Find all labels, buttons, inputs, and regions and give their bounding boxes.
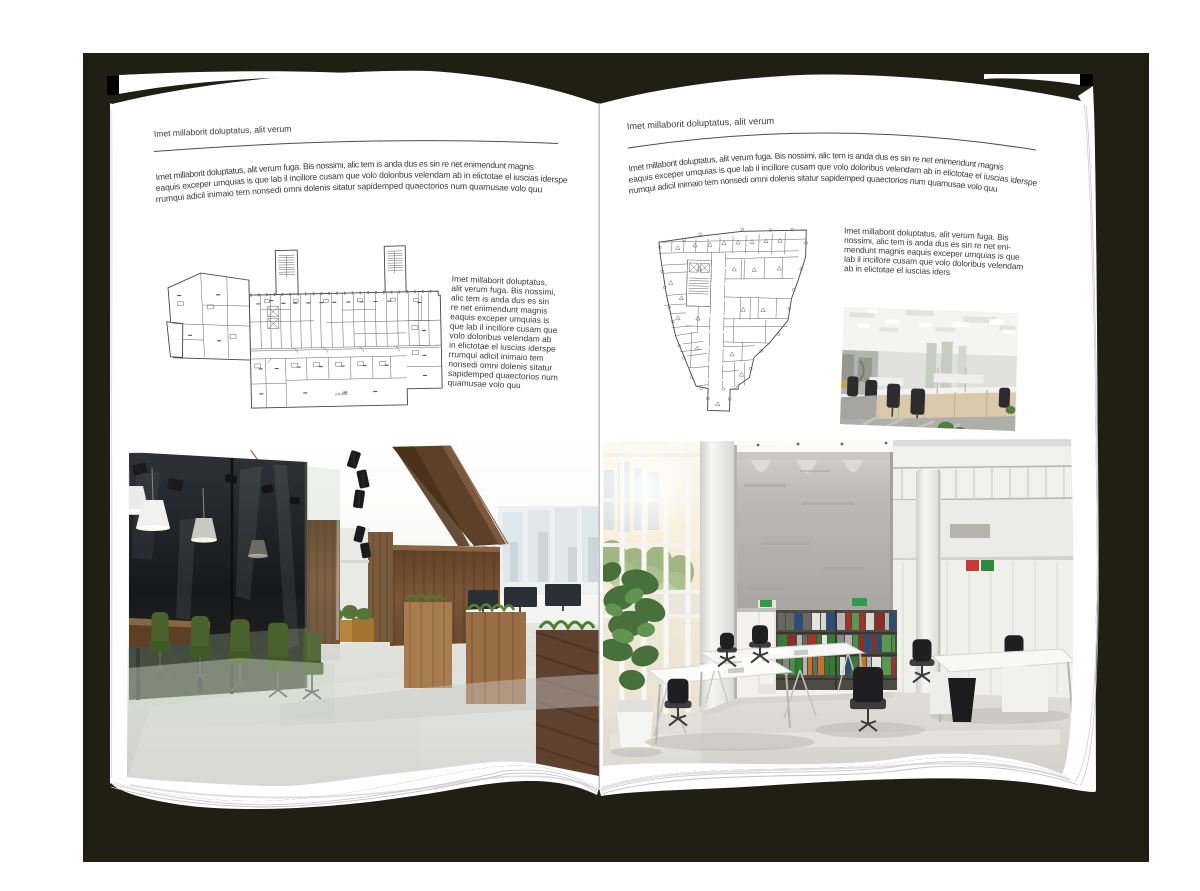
svg-text:2-N 3AN: 2-N 3AN: [335, 392, 348, 396]
